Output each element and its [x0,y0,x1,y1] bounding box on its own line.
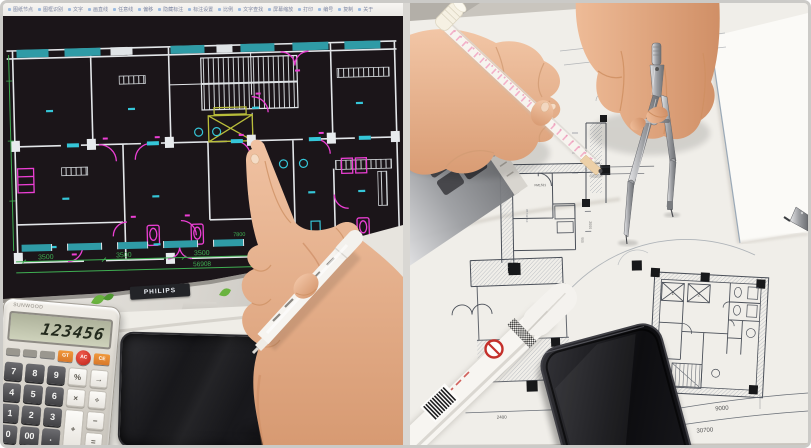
drawing-number-note: 05742310 [525,209,529,223]
dim-500: 500 [580,237,584,243]
photo-divider [403,3,410,445]
dim-9000: 9000 [715,405,729,412]
dim-2400: 2400 [497,414,508,419]
door-label: FM1521 [534,183,546,187]
dim-2000: 2000 [588,221,592,229]
drafting-scene: 05742310 FM1521 2000 500 [410,3,808,445]
right-photo-blueprint-drafting: 05742310 FM1521 2000 500 [410,3,808,445]
left-photo-cad-workstation: 图纸节点 图框识别 文字 画直线 任意线 偏移 隐藏标注 标注设置 比例 文字查… [3,3,403,445]
photo-collage: 图纸节点 图框识别 文字 画直线 任意线 偏移 隐藏标注 标注设置 比例 文字查… [0,0,811,448]
dim-30700: 30700 [696,427,714,434]
hand-with-marker [3,3,403,445]
